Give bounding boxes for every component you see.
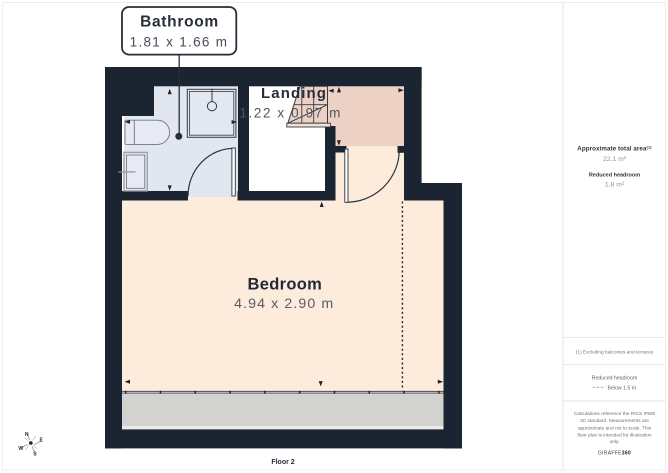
svg-text:Bedroom: Bedroom <box>248 275 323 293</box>
svg-text:GIRAFFE360: GIRAFFE360 <box>598 451 631 457</box>
svg-text:Below 1.5 m: Below 1.5 m <box>608 385 637 391</box>
svg-text:4.94 x 2.90 m: 4.94 x 2.90 m <box>234 296 334 312</box>
svg-text:W: W <box>18 446 23 452</box>
svg-text:approximate and not to scale.: approximate and not to scale. This <box>578 425 652 431</box>
svg-text:Calculations reference the RIC: Calculations reference the RICS IPMS <box>574 411 656 417</box>
svg-text:Reduced headroom: Reduced headroom <box>592 376 638 382</box>
svg-text:only.: only. <box>610 439 620 445</box>
svg-text:S: S <box>33 452 37 458</box>
svg-text:Landing: Landing <box>261 85 327 102</box>
svg-text:1.8 m²: 1.8 m² <box>605 181 625 188</box>
svg-text:22.1 m²: 22.1 m² <box>603 156 627 163</box>
svg-text:Reduced headroom: Reduced headroom <box>589 173 640 179</box>
svg-text:N: N <box>25 432 29 438</box>
svg-text:Bathroom: Bathroom <box>140 14 219 31</box>
svg-text:1.81 x 1.66 m: 1.81 x 1.66 m <box>130 35 229 50</box>
svg-text:1.22 x 0.97 m: 1.22 x 0.97 m <box>239 106 342 121</box>
svg-text:3C standard. Measurements are: 3C standard. Measurements are <box>580 418 649 424</box>
svg-text:floor plan is intended for ill: floor plan is intended for illustration <box>577 432 651 438</box>
svg-text:E: E <box>39 438 43 444</box>
svg-text:Approximate total area(1): Approximate total area(1) <box>577 145 652 153</box>
svg-text:(1) Excluding balconies and te: (1) Excluding balconies and terraces <box>576 350 654 356</box>
svg-text:Floor 2: Floor 2 <box>271 459 294 466</box>
